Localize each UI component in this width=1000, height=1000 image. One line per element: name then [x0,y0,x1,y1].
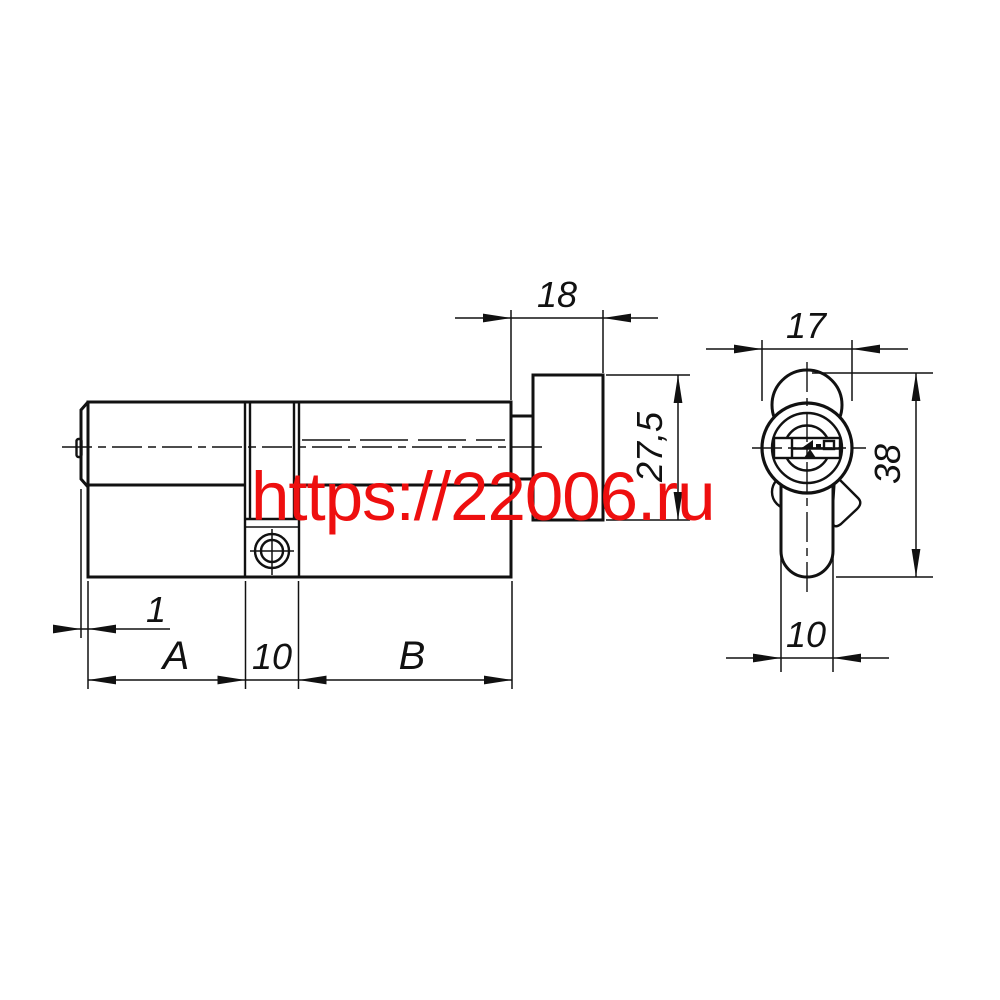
dim-label-section-a: A [161,634,190,678]
dim-label-end-body-width: 10 [786,614,826,655]
dim-label-cam-width: 10 [252,636,292,677]
watermark: https://22006.ru [251,462,715,531]
dim-label-end-height: 38 [867,444,908,484]
dim-label-section-b: B [399,634,426,678]
dim-label-end-width: 17 [786,305,828,346]
dim-label-knob-length: 18 [537,274,577,315]
drawing-canvas: 18 27,5 1 A 10 B 17 38 [0,0,1000,1000]
dim-label-chamfer: 1 [146,589,166,630]
end-view [752,362,866,596]
